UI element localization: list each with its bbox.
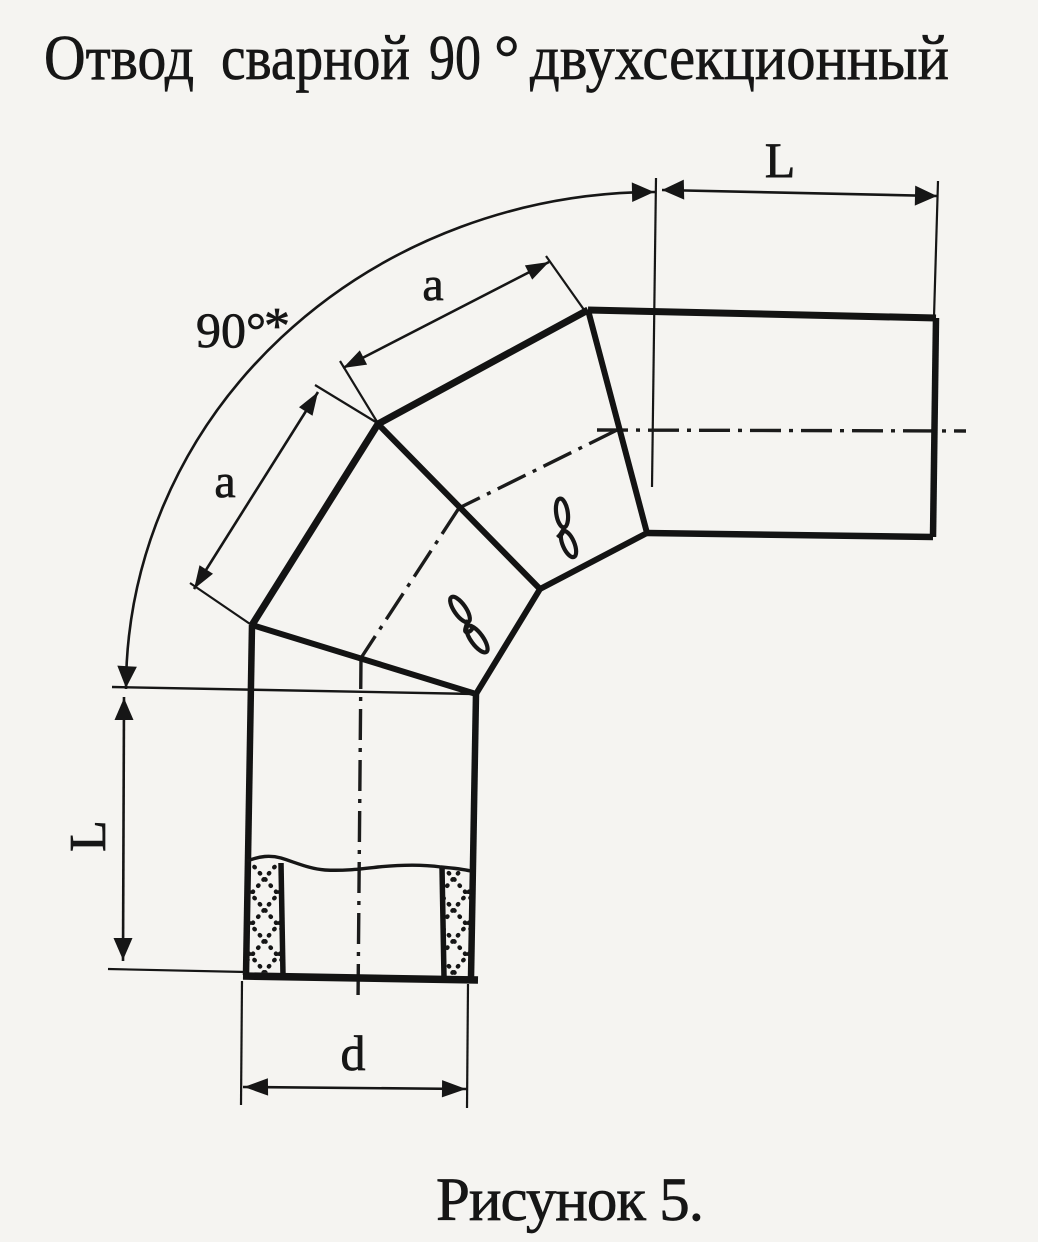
svg-text:°: ° [494,22,520,93]
svg-text:сварной: сварной [221,22,410,93]
svg-text:90: 90 [429,22,481,93]
svg-text:L: L [60,820,117,852]
svg-text:*: * [264,298,290,355]
svg-text:90°: 90° [196,302,266,358]
svg-text:a: a [214,455,235,508]
svg-text:Отвод: Отвод [44,22,194,93]
svg-text:L: L [765,132,796,188]
svg-text:Рисунок 5.: Рисунок 5. [436,1167,704,1234]
svg-text:d: d [341,1025,366,1081]
svg-text:двухсекционный: двухсекционный [530,22,949,93]
svg-text:a: a [422,258,443,311]
